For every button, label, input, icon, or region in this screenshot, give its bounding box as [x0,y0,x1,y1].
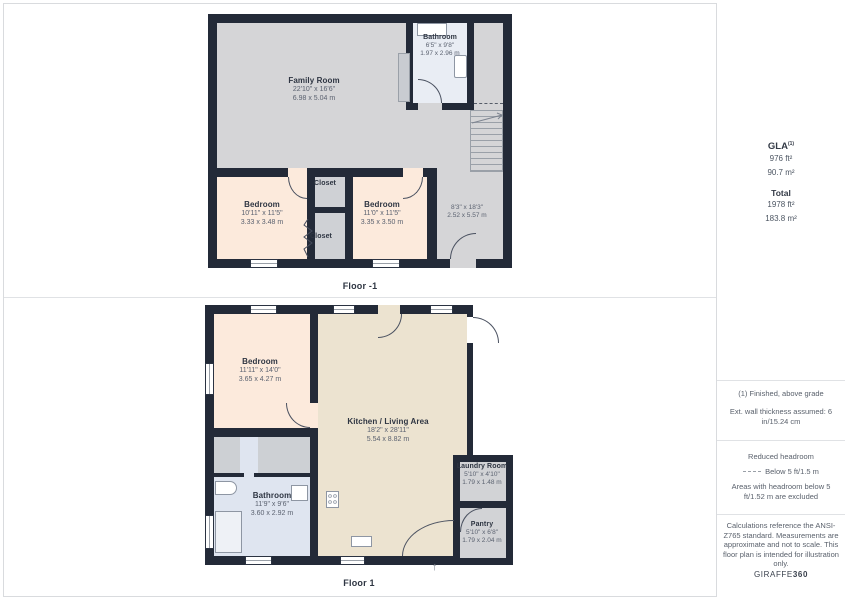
wall [254,473,310,477]
sink-fixture [351,536,372,547]
window [372,259,400,268]
room-name: Closet [299,233,343,241]
room-dim-m: 3.35 x 3.50 m [342,219,422,228]
room-label-closet-bottom: Closet [299,233,343,241]
room-dim-m: 5.54 x 8.82 m [333,436,443,445]
room-label-stair-hall: 8'3" x 18'3" 2.52 x 5.57 m [432,204,502,220]
window [205,363,214,395]
room-name: Bedroom [342,200,422,210]
chimney-fixture [398,53,410,102]
gla-sqm: 90.7 m² [717,166,845,180]
window [205,515,214,549]
sidebar-divider [717,440,845,441]
wall [214,473,244,477]
room-dim-m: 3.60 x 2.92 m [232,510,312,519]
note-disclaimer: Calculations reference the ANSI-Z765 sta… [722,521,840,569]
room-name: Family Room [249,76,379,86]
toilet-fixture [454,55,467,78]
stove-burners-icon [327,492,338,507]
room-name: Bedroom [222,200,302,210]
sidebar: GLA(1) 976 ft² 90.7 m² Total 1978 ft² 18… [716,3,845,597]
window [245,556,272,565]
brand-suffix: 360 [793,570,808,579]
floorplan-page: Family Room 22'10" x 16'6" 6.98 x 5.04 m… [0,0,848,600]
stairs [470,110,503,172]
legend-text: Below 5 ft/1.5 m [765,467,819,476]
room-dim-ft: 11'0" x 11'5" [342,210,422,219]
door-opening [310,403,318,428]
room-dim-ft: 8'3" x 18'3" [432,204,502,212]
room-dim-m: 1.79 x 2.04 m [456,537,508,545]
room-label-closet-top: Closet [303,180,347,188]
room-dim-m: 6.98 x 5.04 m [249,95,379,104]
room-name: Closet [303,180,347,188]
room-label-bathroom: Bathroom 11'9" x 9'6" 3.60 x 2.92 m [232,491,312,518]
room-name: Bathroom [232,491,312,501]
note-reduced-headroom-legend: Below 5 ft/1.5 m [722,467,840,477]
room-name: Pantry [456,521,508,529]
room-name: Bedroom [220,357,300,367]
plans-divider [4,297,716,298]
room-dim-ft: 18'2" x 28'11" [333,427,443,436]
reduced-headroom-line [474,103,503,104]
room-label-pantry: Pantry 5'10" x 6'8" 1.79 x 2.04 m [456,521,508,545]
room-dim-m: 2.52 x 5.57 m [432,212,502,220]
room-name: Kitchen / Living Area [333,417,443,427]
room-dim-m: 1.97 x 2.96 m [405,50,475,58]
window [333,305,355,314]
note-finished-grade: (1) Finished, above grade [722,389,840,399]
door-opening [450,259,476,268]
total-sqft: 1978 ft² [717,198,845,212]
door-opening [403,168,423,177]
floor-closet [258,437,310,475]
floor-1-caption: Floor 1 [205,578,513,588]
window [250,305,277,314]
wall-thin [469,343,471,457]
stairs-direction-line [471,111,504,173]
room-dim-ft: 22'10" x 16'6" [249,86,379,95]
room-label-family-room: Family Room 22'10" x 16'6" 6.98 x 5.04 m [249,76,379,103]
gla-title: GLA(1) [717,141,845,152]
door-arc [473,317,499,343]
area-summary: GLA(1) 976 ft² 90.7 m² Total 1978 ft² 18… [717,141,845,226]
room-label-bedroom: Bedroom 11'11" x 14'0" 3.65 x 4.27 m [220,357,300,384]
floorplan-floor-minus1: Family Room 22'10" x 16'6" 6.98 x 5.04 m… [208,14,512,268]
room-dim-m: 3.65 x 4.27 m [220,376,300,385]
gla-footnote-marker: (1) [788,141,794,147]
gla-sqft: 976 ft² [717,152,845,166]
note-wall-thickness: Ext. wall thickness assumed: 6 in/15.24 … [722,407,840,427]
sidebar-divider [717,514,845,515]
room-dim-m: 1.79 x 1.48 m [454,479,510,487]
room-dim-ft: 6'5" x 9'8" [405,42,475,50]
room-name: Bathroom [405,34,475,42]
door-opening [418,103,442,110]
total-sqm: 183.8 m² [717,212,845,226]
door-opening [378,305,400,314]
total-title: Total [717,188,845,198]
room-dim-ft: 10'11" x 11'5" [222,210,302,219]
floor-closet [214,437,240,475]
room-label-laundry: Laundry Room 5'10" x 4'10" 1.79 x 1.48 m [454,463,510,487]
dashed-line-icon [743,471,761,472]
room-dim-ft: 11'11" x 14'0" [220,367,300,376]
room-dim-ft: 5'10" x 4'10" [454,471,510,479]
gla-label: GLA [768,141,788,152]
note-headroom-excluded: Areas with headroom below 5 ft/1.52 m ar… [722,482,840,502]
window [430,305,453,314]
window [340,556,365,565]
room-label-bathroom: Bathroom 6'5" x 9'8" 1.97 x 2.96 m [405,34,475,58]
entrance-arrow-icon: ↑ [432,562,438,573]
brand-name: GIRAFFE [754,570,793,579]
wall [214,428,318,437]
door-opening [288,168,307,177]
room-dim-m: 3.33 x 3.48 m [222,219,302,228]
room-label-bedroom-left: Bedroom 10'11" x 11'5" 3.33 x 3.48 m [222,200,302,227]
room-name: Laundry Room [454,463,510,471]
room-dim-ft: 5'10" x 6'8" [456,529,508,537]
room-label-bedroom-right: Bedroom 11'0" x 11'5" 3.35 x 3.50 m [342,200,422,227]
note-reduced-headroom-title: Reduced headroom [722,452,840,462]
floorplan-floor-1: Bedroom 11'11" x 14'0" 3.65 x 4.27 m Kit… [205,305,513,565]
sidebar-divider [717,380,845,381]
room-label-kitchen-living: Kitchen / Living Area 18'2" x 28'11" 5.5… [333,417,443,444]
window [250,259,278,268]
stove-fixture [326,491,339,508]
floor-minus1-caption: Floor -1 [208,281,512,291]
room-dim-ft: 11'9" x 9'6" [232,501,312,510]
giraffe360-logo: GIRAFFE360 [717,570,845,579]
